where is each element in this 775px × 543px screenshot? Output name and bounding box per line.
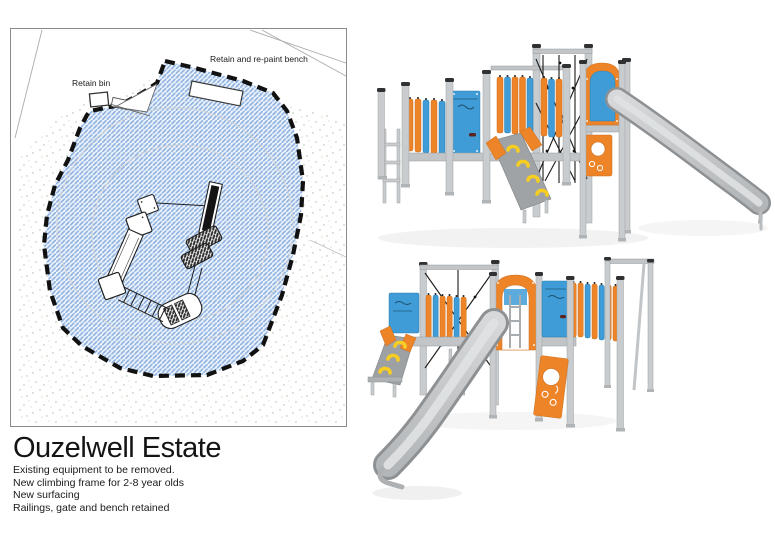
overhead-bar (604, 257, 654, 392)
render-bottom (362, 253, 734, 508)
play-panel (389, 293, 419, 333)
note-line: Existing equipment to be removed. (13, 464, 358, 477)
climbing-ramp (486, 127, 551, 223)
access-ladder (383, 129, 400, 203)
title-block: Ouzelwell Estate Existing equipment to b… (13, 432, 358, 514)
note-line: New surfacing (13, 489, 358, 502)
play-panel (451, 91, 480, 155)
slide (617, 99, 761, 229)
ground-shadow (378, 228, 648, 248)
site-plan: Retain bin Retain and re-paint bench (10, 28, 347, 427)
ground-shadow (372, 486, 462, 500)
climbing-ramp (368, 326, 416, 397)
platform-deck (582, 125, 623, 132)
bench-label: Retain and re-paint bench (210, 54, 308, 64)
slat-panel (571, 281, 618, 341)
note-line: New climbing frame for 2-8 year olds (13, 477, 358, 490)
porthole-panel (585, 135, 612, 176)
page-title: Ouzelwell Estate (13, 432, 358, 464)
render-top (373, 33, 773, 268)
ground-shadow (638, 220, 768, 236)
play-panel (542, 281, 569, 337)
bin-label: Retain bin (72, 78, 111, 88)
plan-sheet: Retain bin Retain and re-paint bench (0, 0, 775, 543)
note-line: Railings, gate and bench retained (13, 502, 358, 515)
